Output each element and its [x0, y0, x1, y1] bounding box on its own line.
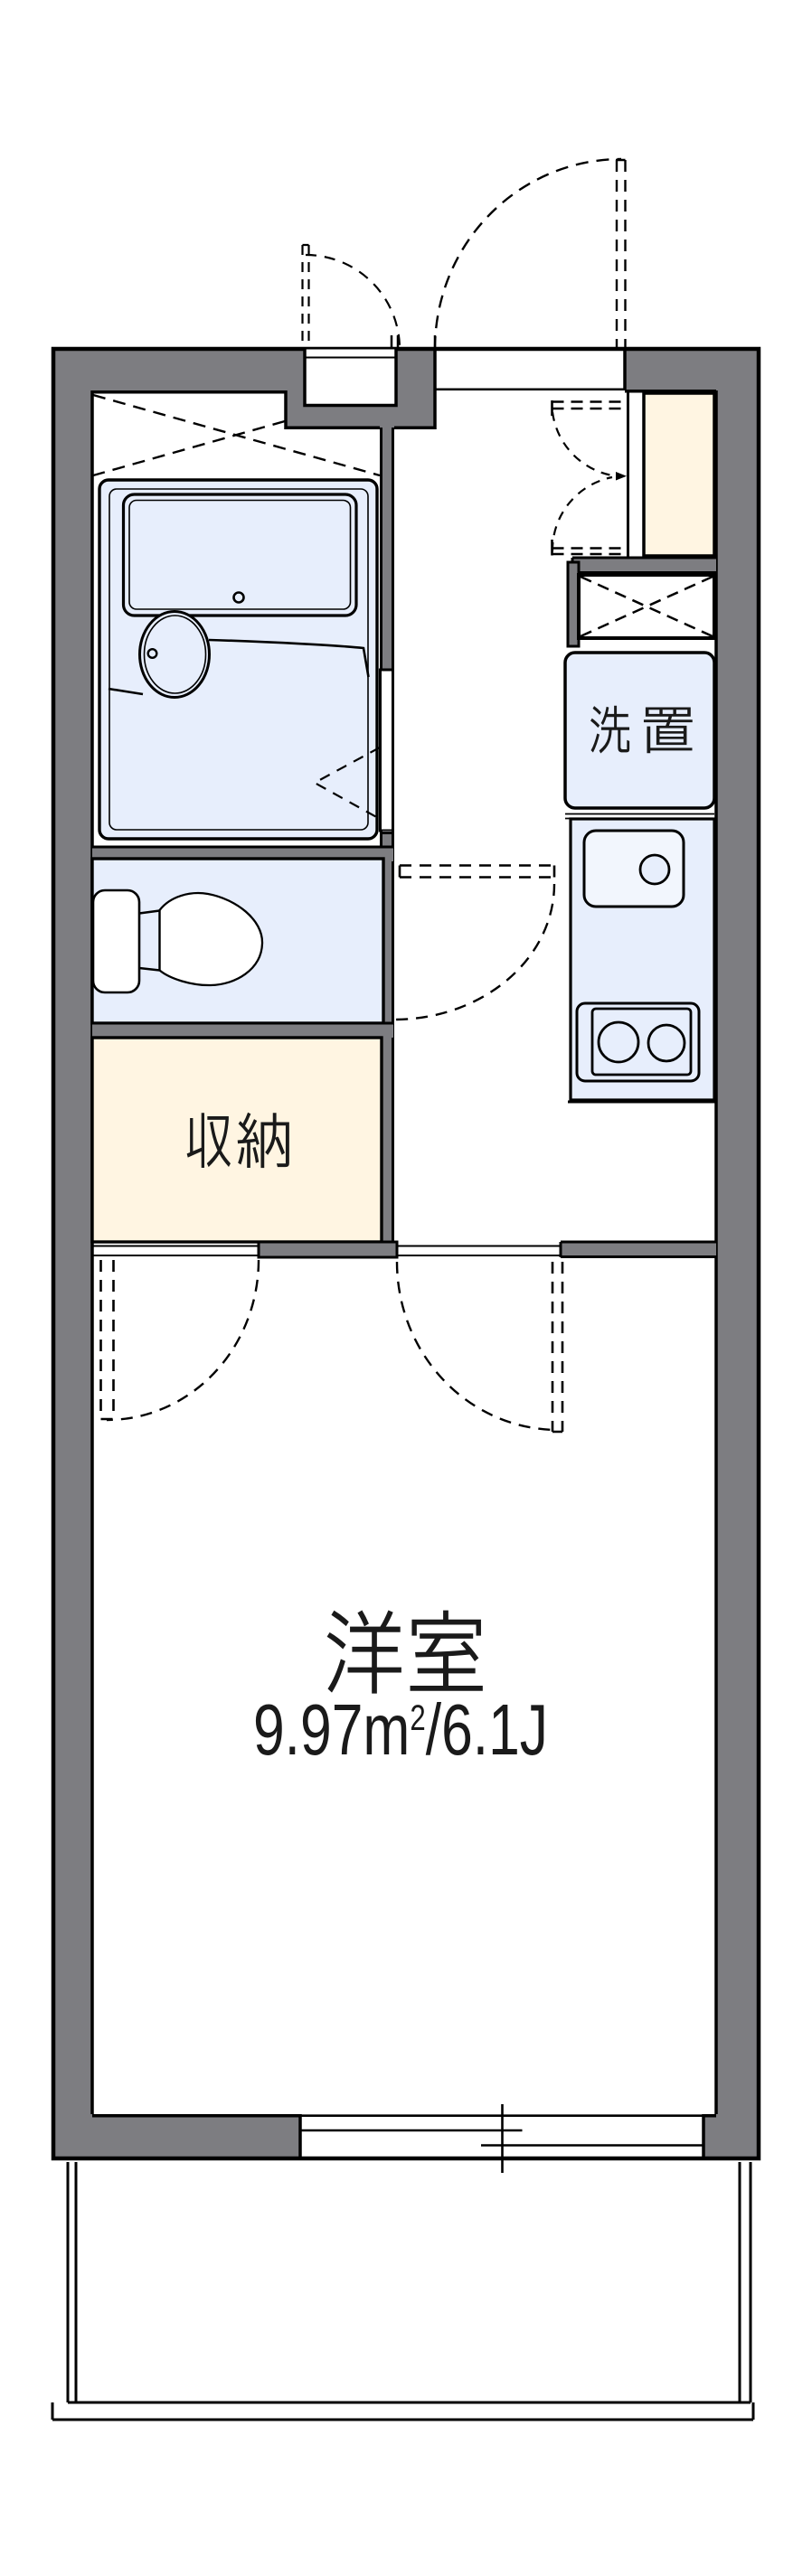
svg-text:9.97m2/6.1J: 9.97m2/6.1J — [253, 1690, 548, 1771]
